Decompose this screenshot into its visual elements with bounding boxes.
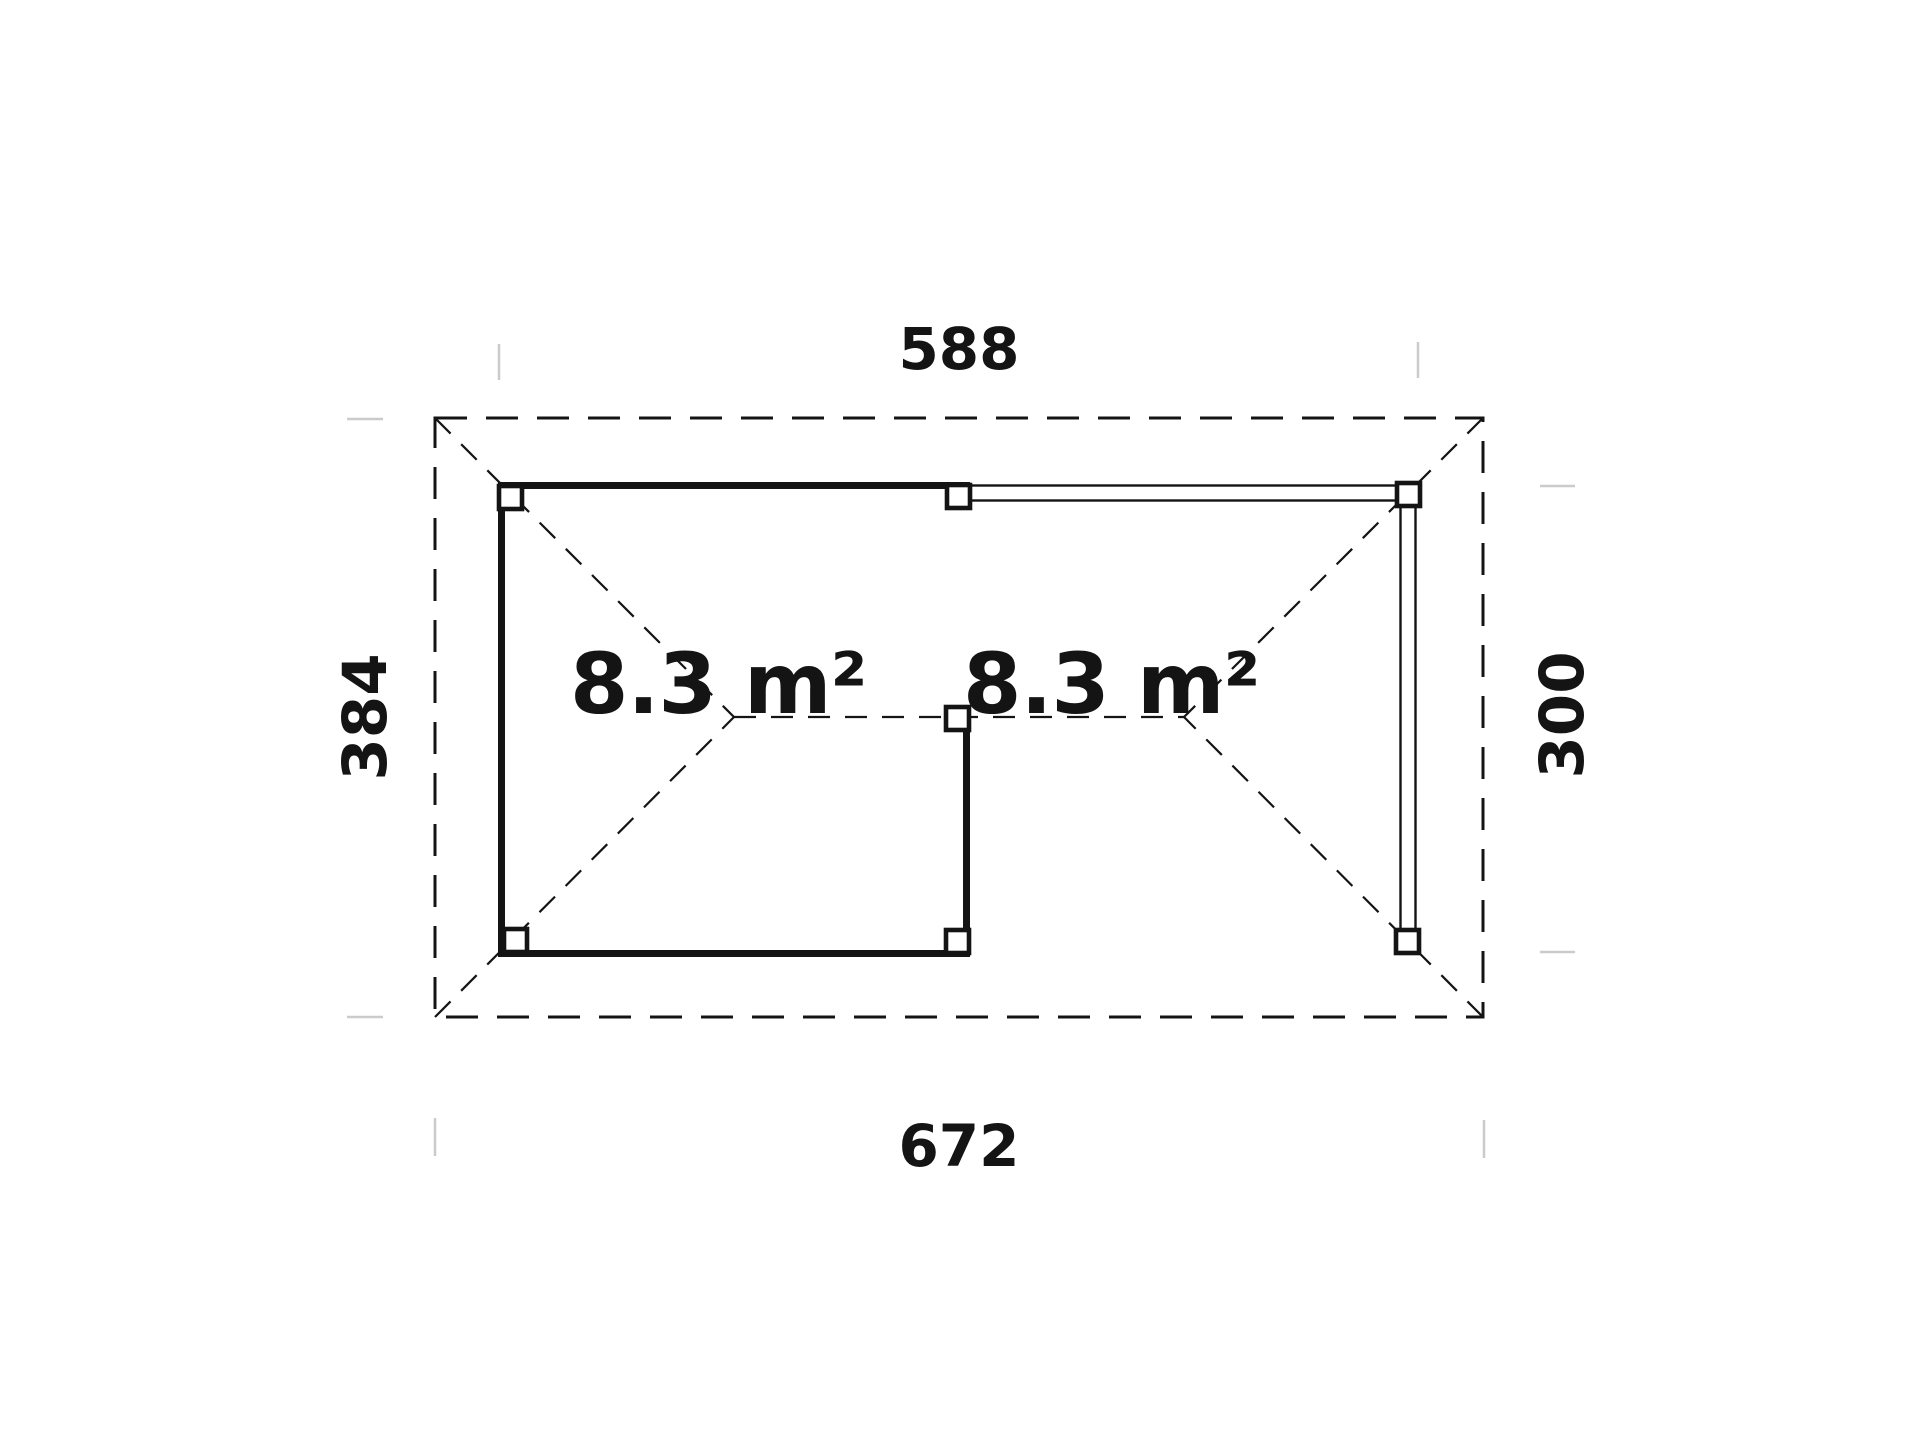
post-room-top-left — [499, 486, 522, 509]
extension-ticks — [347, 342, 1575, 1158]
wall-top — [498, 482, 970, 489]
dimension-label-right: 300 — [1527, 651, 1598, 778]
wall-bottom — [498, 950, 970, 957]
wall-left — [498, 482, 505, 957]
floor-plan-canvas: 588 672 384 300 8.3 m² 8.3 m² — [0, 0, 1920, 1439]
beam-right — [1401, 504, 1416, 932]
post-canopy-top-right — [1397, 483, 1420, 506]
dimension-label-top: 588 — [898, 315, 1019, 383]
area-label-room: 8.3 m² — [570, 635, 866, 733]
dimension-label-left: 384 — [330, 653, 401, 780]
area-label-canopy: 8.3 m² — [963, 635, 1259, 733]
post-canopy-bottom-right — [1396, 930, 1419, 953]
dimension-label-bottom: 672 — [898, 1112, 1019, 1180]
post-room-bottom-right — [946, 930, 969, 953]
post-room-top-right — [947, 485, 970, 508]
post-room-bottom-left — [504, 929, 527, 952]
hip-line-bottom-left — [435, 717, 734, 1017]
hip-line-bottom-right — [1184, 717, 1483, 1017]
beam-top — [970, 486, 1398, 501]
floor-plan-drawing: 588 672 384 300 8.3 m² 8.3 m² — [0, 0, 1920, 1439]
wall-right-lower — [963, 719, 970, 957]
